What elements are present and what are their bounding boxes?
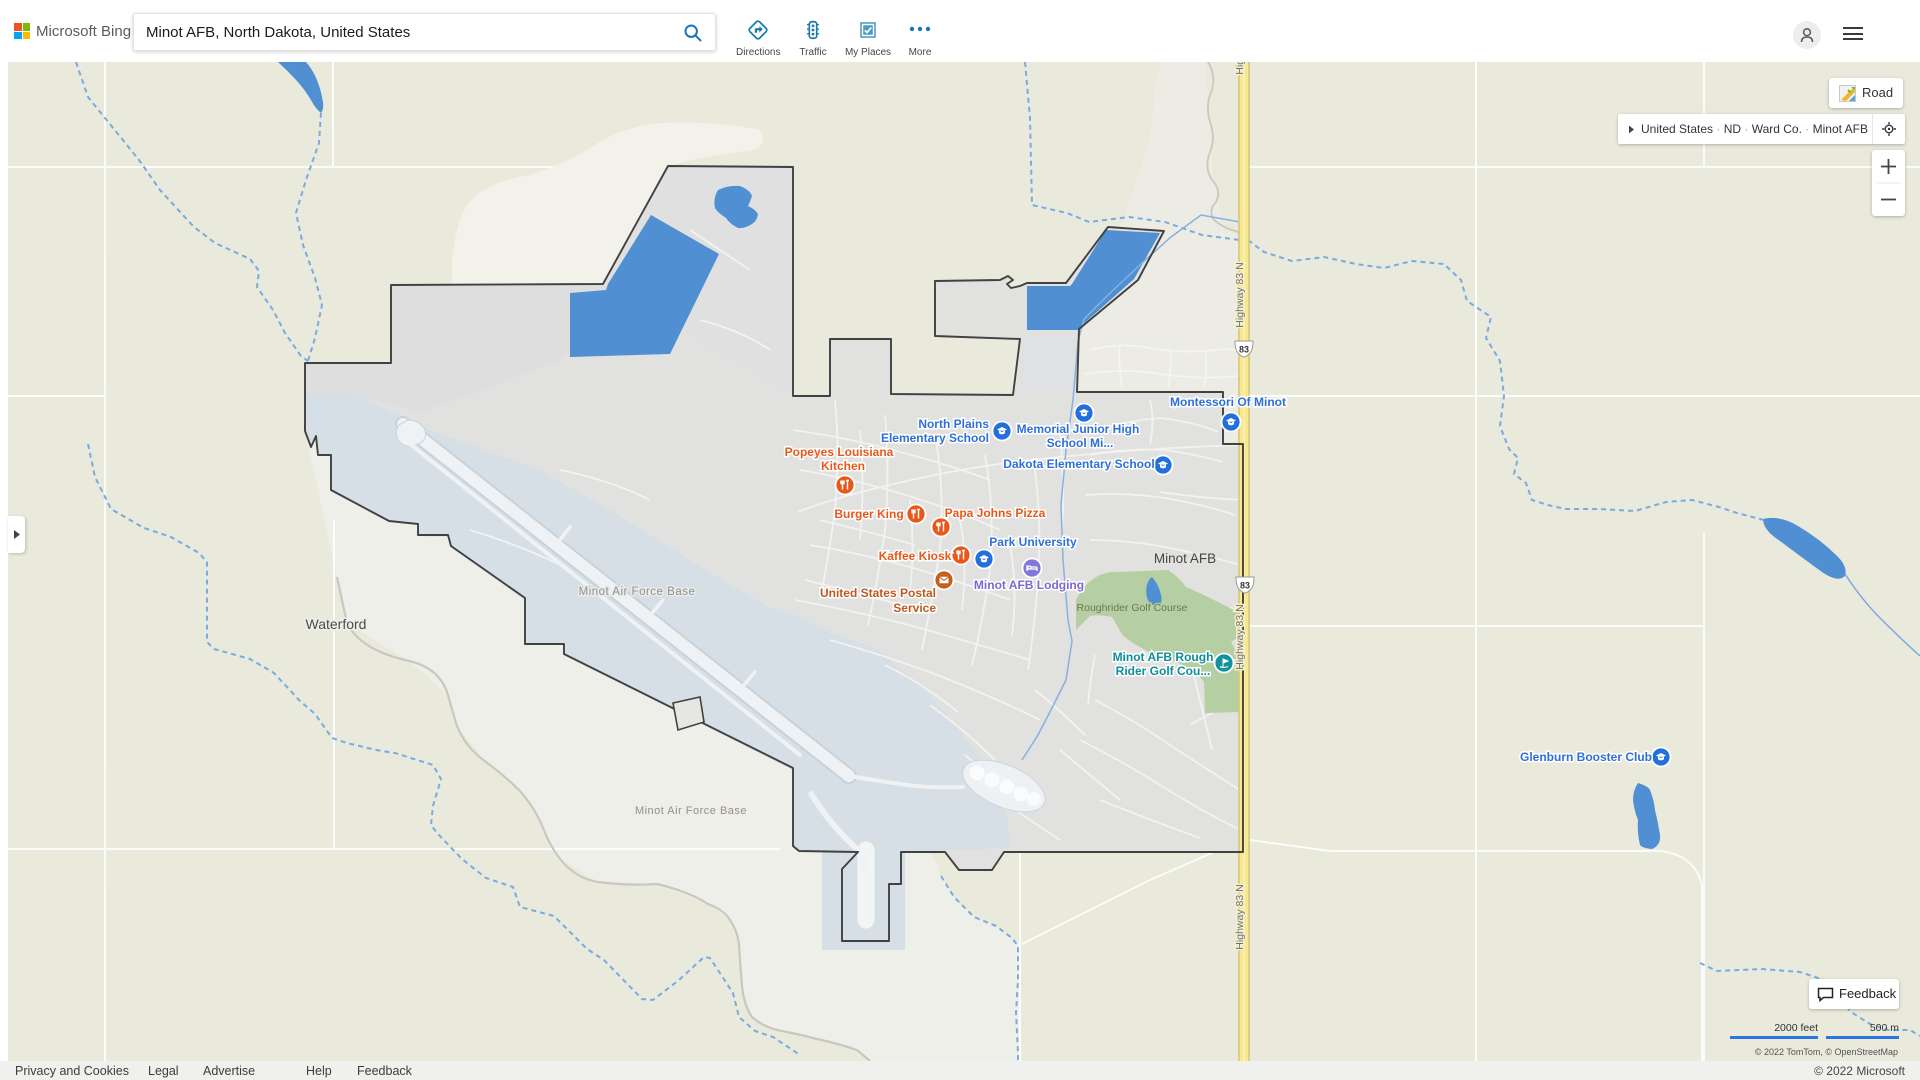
svg-text:Waterford: Waterford bbox=[306, 616, 367, 632]
svg-text:Kitchen: Kitchen bbox=[821, 459, 865, 473]
svg-text:Minot Air Force Base: Minot Air Force Base bbox=[579, 586, 696, 598]
svg-text:Papa Johns Pizza: Papa Johns Pizza bbox=[945, 506, 1046, 520]
svg-text:Minot AFB Lodging: Minot AFB Lodging bbox=[974, 578, 1084, 592]
svg-text:Highway 83 N: Highway 83 N bbox=[1234, 604, 1246, 669]
svg-text:Burger King: Burger King bbox=[834, 507, 903, 521]
svg-text:Park University: Park University bbox=[989, 535, 1077, 549]
svg-text:School Mi...: School Mi... bbox=[1047, 436, 1114, 450]
svg-text:Minot AFB: Minot AFB bbox=[1154, 551, 1216, 566]
svg-text:Montessori Of Minot: Montessori Of Minot bbox=[1170, 395, 1286, 409]
svg-text:Roughrider Golf Course: Roughrider Golf Course bbox=[1077, 602, 1188, 614]
svg-text:Elementary School: Elementary School bbox=[881, 431, 989, 445]
svg-text:Dakota Elementary School: Dakota Elementary School bbox=[1003, 457, 1154, 471]
svg-text:United States Postal: United States Postal bbox=[820, 586, 936, 600]
svg-text:Kaffee Kiosk: Kaffee Kiosk bbox=[879, 549, 952, 563]
svg-text:Glenburn Booster Club: Glenburn Booster Club bbox=[1520, 750, 1652, 764]
svg-text:Minot AFB Rough: Minot AFB Rough bbox=[1113, 650, 1214, 664]
svg-text:83: 83 bbox=[1240, 581, 1250, 591]
svg-text:Rider Golf Cou...: Rider Golf Cou... bbox=[1116, 664, 1211, 678]
svg-text:83: 83 bbox=[1239, 345, 1249, 355]
svg-text:Minot Air Force Base: Minot Air Force Base bbox=[635, 805, 747, 817]
svg-text:Service: Service bbox=[893, 601, 936, 615]
svg-text:Highway 83 N: Highway 83 N bbox=[1234, 262, 1246, 327]
svg-text:Popeyes Louisiana: Popeyes Louisiana bbox=[785, 445, 894, 459]
svg-text:North Plains: North Plains bbox=[918, 417, 989, 431]
svg-text:Memorial Junior High: Memorial Junior High bbox=[1017, 422, 1140, 436]
svg-text:Highway 83 N: Highway 83 N bbox=[1234, 884, 1246, 949]
